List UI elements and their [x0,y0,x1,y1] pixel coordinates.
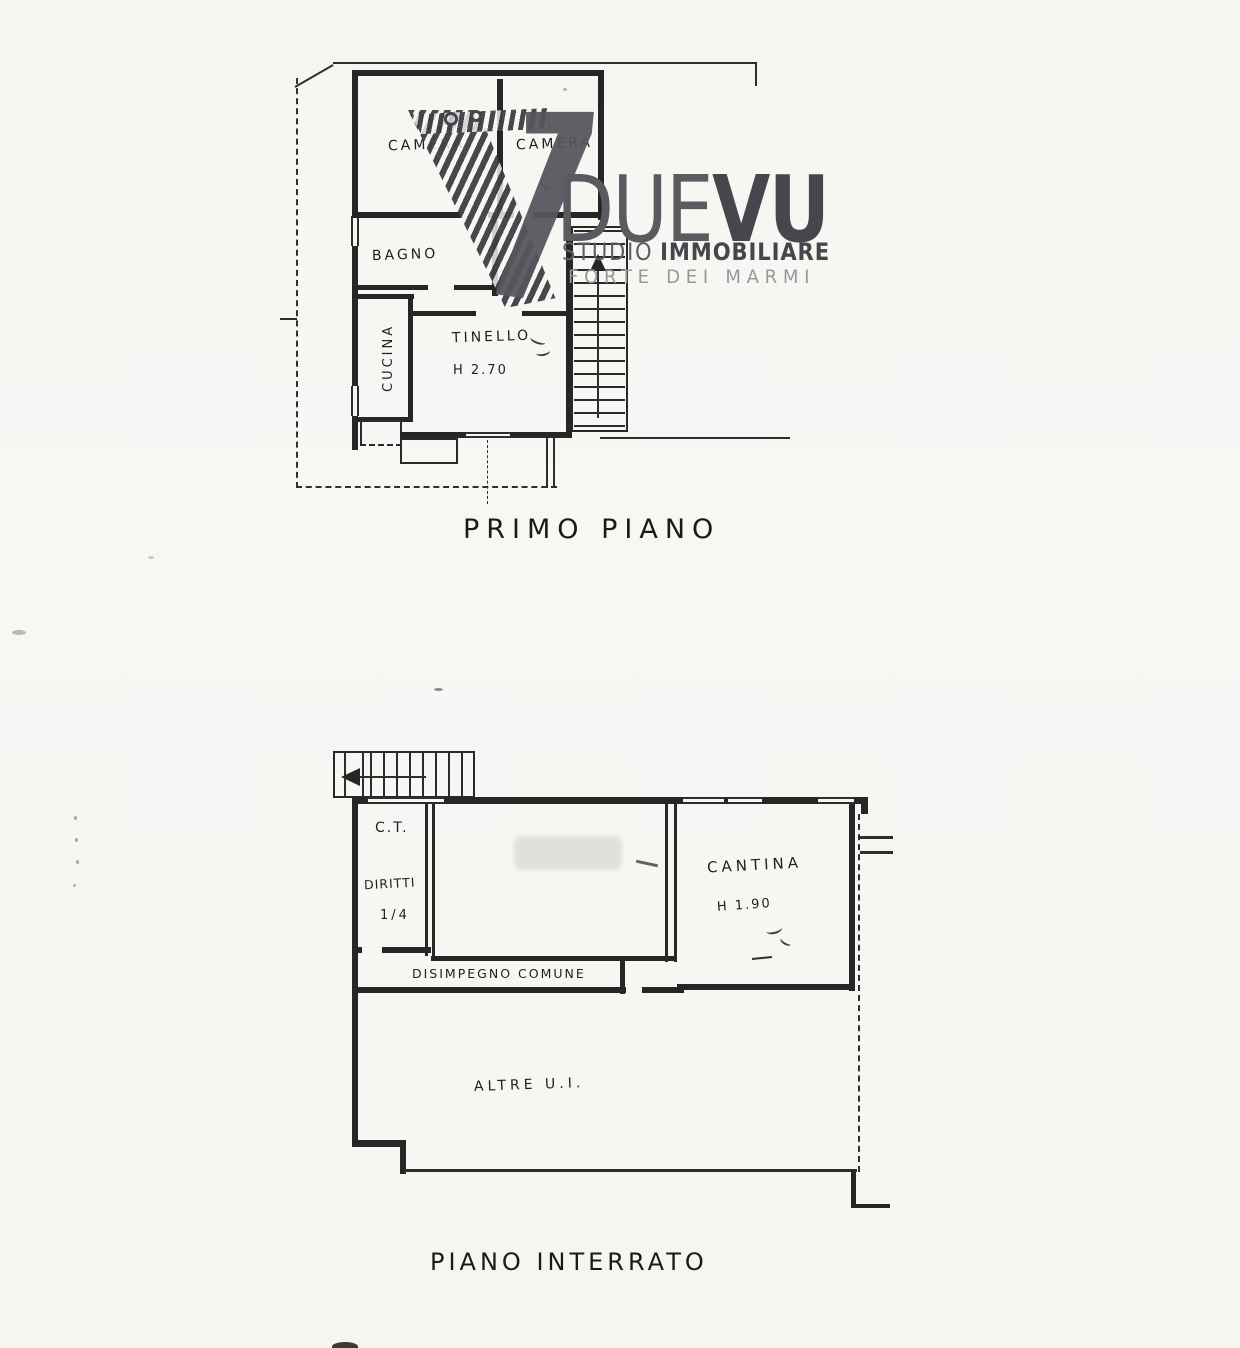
wall-stub-right-1 [860,836,893,839]
room-label-altre-ui: ALTRE U.I. [474,1075,585,1095]
scan-speckle [74,816,77,820]
window-right [818,797,854,804]
door-bagno [428,285,454,290]
wall-cantina-bottom [677,984,855,990]
wall-top [352,70,604,76]
wall-tinello-top-right [522,311,568,316]
scroll-curl-icon [470,110,482,122]
window-bottom [466,432,510,438]
door-corridor [626,987,642,993]
scan-speckle [148,556,154,559]
property-line-top-end [755,62,757,86]
floor-caption-primo-piano: PRIMO PIANO [463,514,720,545]
scan-smudge [514,836,622,870]
outer-boundary-corner [295,64,334,88]
brand-subtitle: STUDIO IMMOBILIARE [562,240,830,264]
floor-caption-piano-interrato: PIANO INTERRATO [430,1248,708,1276]
scan-speckle [12,630,26,635]
pen-squiggle [535,347,550,357]
room-label-bagno: BAGNO [372,246,439,264]
window-left-upper [351,216,359,246]
boundary-right [858,814,860,1172]
wall-cantina-left [665,804,677,962]
outer-boundary-bottom [296,486,557,488]
scan-speckle [75,838,78,842]
wall-ct-right [425,804,435,956]
wall-central-bottom [431,956,677,961]
wall-bagno-bottom [352,285,498,290]
scan-speckle [73,884,76,887]
room-note-fraction: 1/4 [380,908,410,923]
window-cantina-1 [683,797,724,804]
room-height-cantina: H 1.90 [717,896,773,915]
step-left-horizontal [352,1140,406,1147]
room-label-cantina: CANTINA [707,854,803,877]
boundary-bottom [403,1169,857,1172]
cucina-balcony [360,420,402,446]
wall-tinello-top-left [412,311,476,316]
pen-squiggle [779,935,793,947]
room-label-ct: C.T. [375,820,409,836]
stair-treads [370,753,472,796]
window-axis-line [487,440,488,504]
scan-speckle [563,88,567,91]
scan-speckle [434,688,443,691]
brand-immobiliare: IMMOBILIARE [660,238,830,266]
property-line-bottom [600,437,790,439]
property-line-top [333,62,757,64]
scan-speckle [76,860,79,864]
stair-arrow-line [597,268,599,418]
pen-squiggle [529,334,547,347]
brand-location: FORTE DEI MARMI [568,268,815,287]
room-note-diritti: DIRITTI [364,875,416,893]
pen-squiggle [765,923,783,936]
room-label-disimpegno: DISIMPEGNO COMUNE [412,966,586,981]
window-under-stairs [368,797,444,804]
wall-top-right-return [861,797,868,814]
step-right-vertical [851,1170,856,1208]
brand-studio: STUDIO [562,238,653,266]
stair-down-arrow-icon [341,768,360,786]
room-label-tinello: TINELLO [452,328,532,347]
page-edge-mark [332,1342,358,1348]
wall-cantina-right [849,804,855,991]
door-ct [362,947,382,953]
pen-dash [636,860,658,868]
boundary-connector [546,438,555,488]
wall-cucina-top [352,294,414,299]
pen-dash [752,956,772,960]
scanned-floorplan-page: CAMERA CAMERA BAGNO CUCINA TINELLO H 2.7… [0,0,1240,1348]
step-right-horizontal [851,1204,890,1208]
room-height-tinello: H 2.70 [453,363,508,378]
stair-arrow-line [356,776,426,778]
scroll-curl-icon [444,112,458,126]
outer-boundary-left [296,78,298,488]
window-left-lower [351,386,359,416]
wall-stub-right-2 [860,851,893,854]
room-label-cucina: CUCINA [381,324,396,392]
window-cantina-2 [728,797,762,804]
bottom-step [400,438,458,464]
boundary-tick [280,318,297,320]
stair-newel-line [362,751,364,798]
wall-left [352,797,358,1147]
